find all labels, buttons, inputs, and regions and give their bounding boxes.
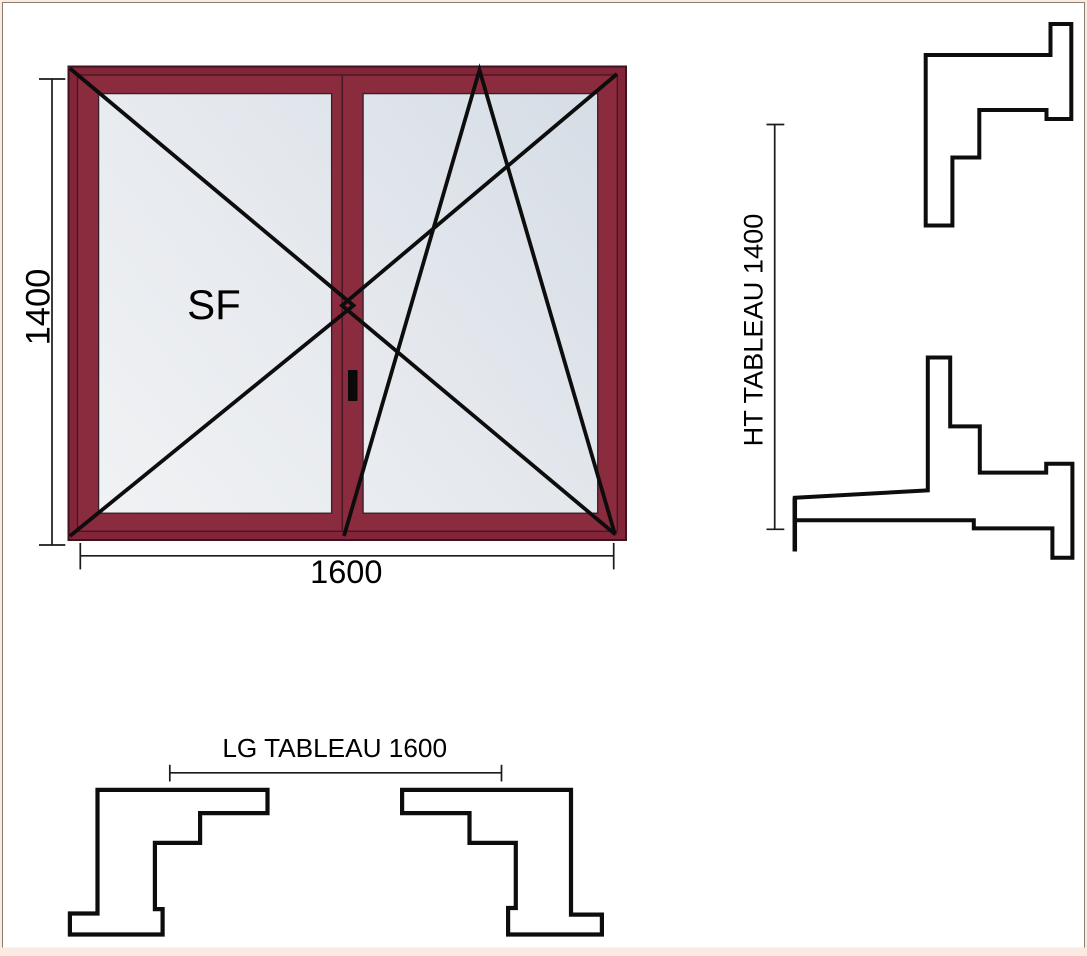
svg-text:1600: 1600 xyxy=(310,554,382,590)
svg-text:HT TABLEAU 1400: HT TABLEAU 1400 xyxy=(738,214,769,447)
svg-text:SF: SF xyxy=(187,281,241,328)
svg-text:LG TABLEAU 1600: LG TABLEAU 1600 xyxy=(222,733,447,763)
svg-text:1400: 1400 xyxy=(20,269,58,346)
